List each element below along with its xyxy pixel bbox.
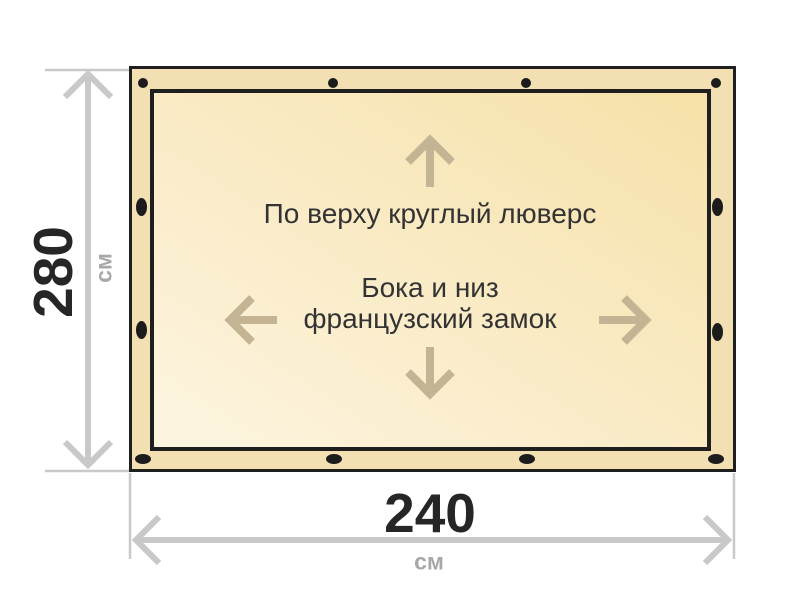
note-sides-bottom-line1: Бока и низ (130, 272, 730, 303)
width-dimension-unit: см (414, 549, 444, 576)
note-sides-bottom-lock: Бока и низ французский замок (130, 272, 730, 334)
note-top-grommet: По верху круглый люверс (130, 198, 730, 229)
grommet-dot-icon (328, 78, 338, 88)
grommet-dot-icon (519, 454, 535, 464)
grommet-dot-icon (138, 78, 148, 88)
height-dimension-unit: см (91, 253, 118, 283)
note-sides-bottom-line2: французский замок (130, 303, 730, 334)
tarp-outline (129, 66, 736, 472)
grommet-dot-icon (326, 454, 342, 464)
grommet-dot-icon (135, 454, 151, 464)
grommet-dot-icon (711, 78, 721, 88)
width-dimension-value: 240 (384, 481, 476, 545)
height-dimension-value: 280 (21, 226, 85, 318)
tarp-inner-panel (150, 89, 711, 451)
tarp-specification-diagram: По верху круглый люверс Бока и низ франц… (0, 0, 800, 600)
grommet-dot-icon (708, 454, 724, 464)
grommet-dot-icon (521, 78, 531, 88)
